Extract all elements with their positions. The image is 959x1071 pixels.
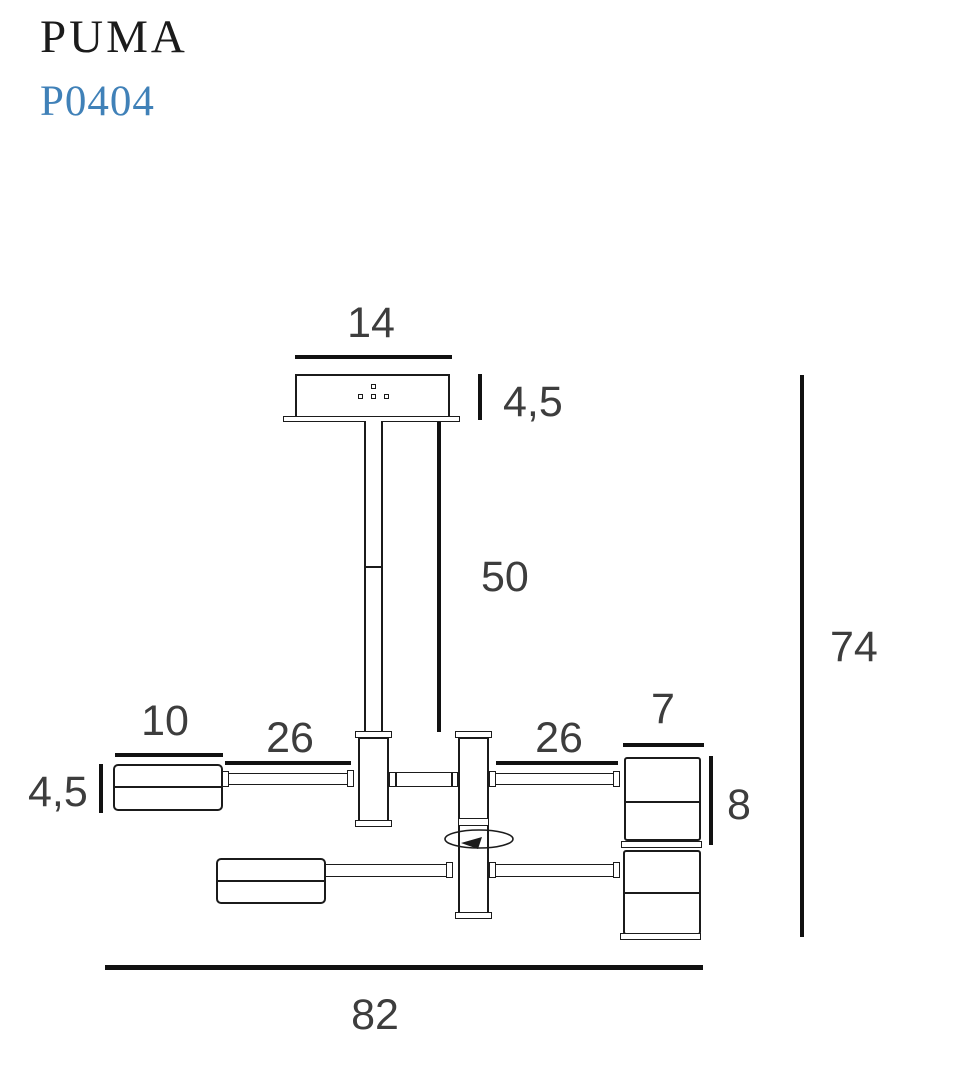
lamp-head-lower-left-seam: [218, 880, 324, 882]
dim-line-left-head-height: [99, 764, 103, 813]
arm-upper-right-ferrule: [489, 771, 496, 787]
dim-line-overall-height: [800, 375, 804, 937]
dim-line-overall-width: [105, 965, 703, 970]
arm-center-ferrule-line: [451, 772, 453, 787]
suspension-rod: [364, 421, 383, 733]
rotation-arrow-icon: [442, 826, 518, 852]
arm-upper-left: [228, 773, 353, 785]
dim-label-right-head-height: 8: [727, 784, 751, 827]
lamp-dimension-drawing-page: PUMA P0404 14 4,5 50 74 10 4,5 26 26: [0, 0, 959, 1071]
canopy-screw: [371, 394, 376, 399]
hub-left-bottom-cap: [355, 820, 392, 827]
canopy-screw: [371, 384, 376, 389]
dim-line-canopy-height: [478, 374, 482, 420]
arm-lower-right-ferrule: [613, 862, 620, 878]
dim-label-right-arm-length: 26: [535, 717, 583, 760]
dim-line-left-arm-length: [225, 761, 351, 765]
dim-label-rod-length: 50: [481, 556, 529, 599]
product-code: P0404: [40, 80, 155, 123]
rod-joint-line: [364, 566, 383, 568]
dim-line-right-head-width: [623, 743, 704, 747]
arm-upper-left-ferrule: [347, 770, 354, 787]
lamp-head-upper-right-trim: [621, 841, 702, 848]
canopy-screw: [384, 394, 389, 399]
dim-line-right-head-height: [709, 756, 713, 845]
arm-center-ferrule-line: [395, 772, 397, 787]
dim-label-canopy-height: 4,5: [503, 381, 563, 424]
dim-line-left-head-length: [115, 753, 223, 757]
dim-label-canopy-width: 14: [347, 302, 395, 345]
dim-line-canopy-width: [295, 355, 452, 359]
dim-label-left-arm-length: 26: [266, 717, 314, 760]
dim-label-overall-width: 82: [351, 994, 399, 1037]
lamp-head-lower-right-trim: [620, 933, 701, 940]
dim-label-overall-height: 74: [830, 626, 878, 669]
hub-right-bottom-cap: [455, 912, 492, 919]
dim-label-left-head-height: 4,5: [28, 771, 88, 814]
arm-upper-left-ferrule: [222, 771, 229, 787]
lamp-head-lower-right-seam: [625, 892, 699, 894]
canopy-screw: [358, 394, 363, 399]
arm-upper-right: [492, 773, 619, 785]
hub-right-joint-band: [458, 818, 489, 826]
dim-label-left-head-length: 10: [141, 700, 189, 743]
arm-lower-left: [325, 864, 453, 877]
arm-center: [389, 772, 458, 787]
arm-upper-right-ferrule: [613, 771, 620, 787]
arm-lower-right-ferrule: [489, 862, 496, 878]
dim-label-right-head-width: 7: [651, 688, 675, 731]
lamp-head-upper-left-seam: [115, 786, 221, 788]
lamp-head-upper-right-seam: [626, 801, 699, 803]
hub-left-body: [358, 737, 389, 822]
dim-line-right-arm-length: [496, 761, 618, 765]
arm-lower-left-ferrule: [446, 862, 453, 878]
product-name: PUMA: [40, 14, 188, 61]
lamp-head-upper-right: [624, 757, 701, 841]
dim-line-rod-length: [437, 422, 441, 732]
arm-lower-right: [492, 864, 619, 877]
